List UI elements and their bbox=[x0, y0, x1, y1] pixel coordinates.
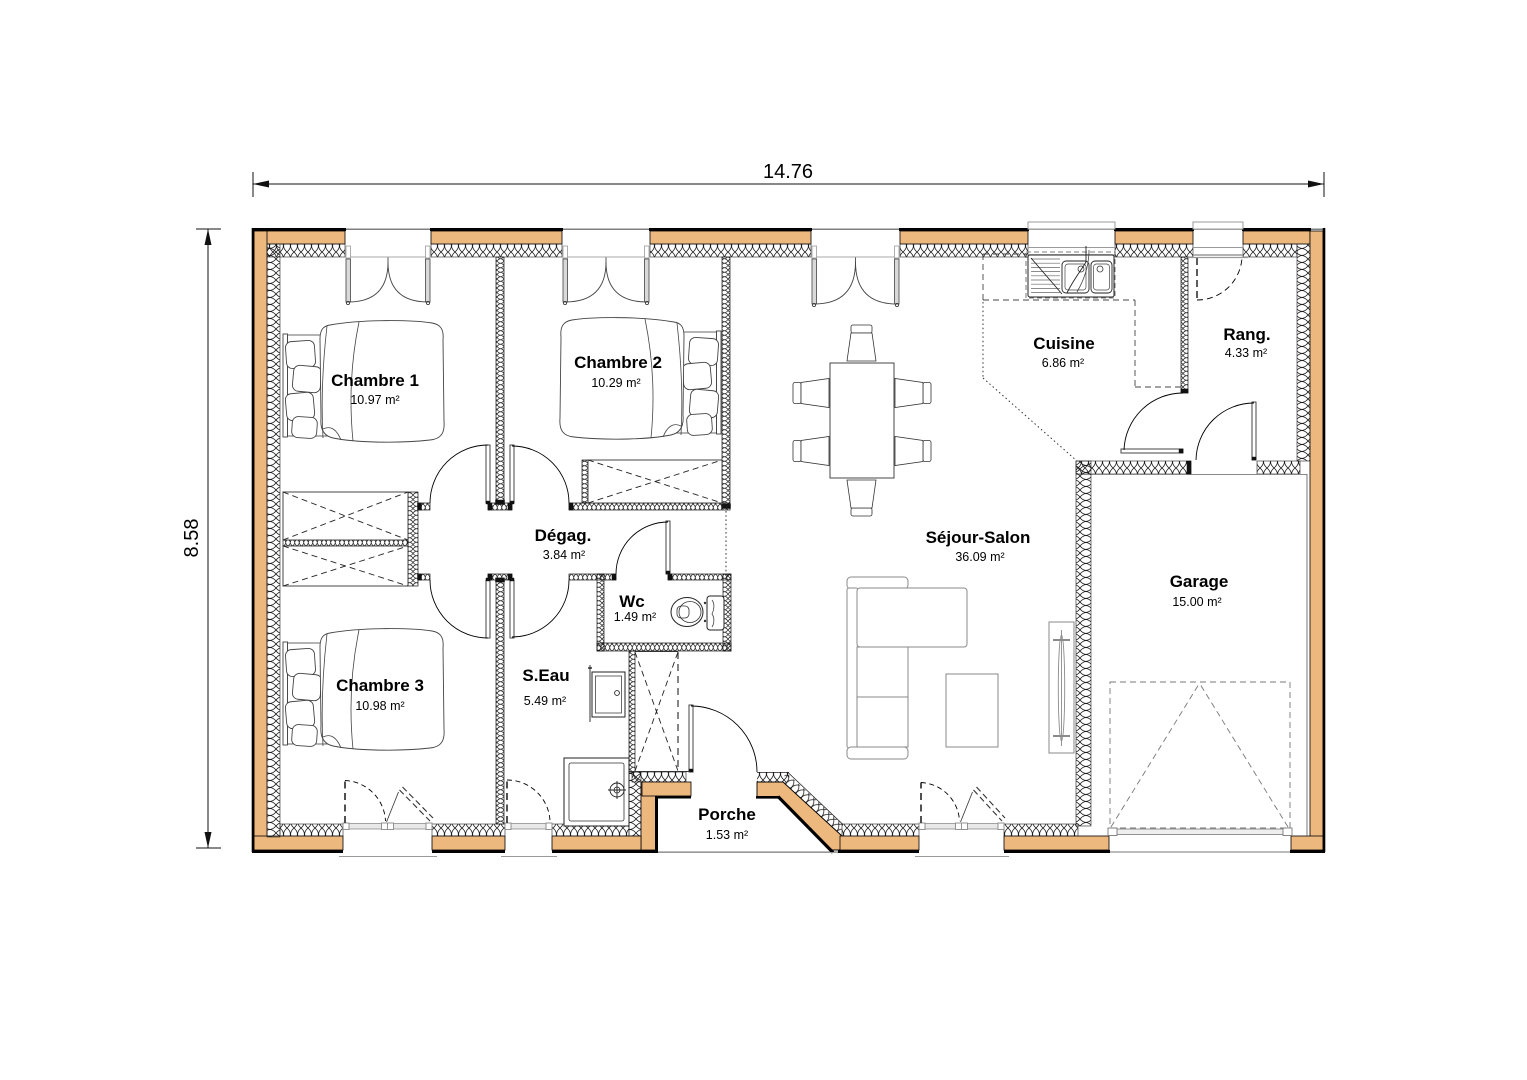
svg-text:5.49 m²: 5.49 m² bbox=[524, 694, 566, 708]
svg-text:6.86 m²: 6.86 m² bbox=[1042, 356, 1084, 370]
svg-text:Chambre 2: Chambre 2 bbox=[574, 353, 662, 372]
svg-text:Porche: Porche bbox=[698, 805, 756, 824]
svg-text:Cuisine: Cuisine bbox=[1033, 334, 1094, 353]
svg-text:Séjour-Salon: Séjour-Salon bbox=[926, 528, 1031, 547]
svg-text:15.00 m²: 15.00 m² bbox=[1172, 595, 1221, 609]
svg-text:14.76: 14.76 bbox=[763, 161, 813, 183]
svg-text:Chambre 3: Chambre 3 bbox=[336, 676, 424, 695]
svg-text:S.Eau: S.Eau bbox=[522, 666, 569, 685]
svg-text:1.53 m²: 1.53 m² bbox=[706, 828, 748, 842]
svg-text:36.09 m²: 36.09 m² bbox=[955, 550, 1004, 564]
svg-text:Rang.: Rang. bbox=[1223, 325, 1270, 344]
svg-text:4.33 m²: 4.33 m² bbox=[1225, 346, 1267, 360]
svg-text:10.98 m²: 10.98 m² bbox=[355, 699, 404, 713]
svg-text:10.29 m²: 10.29 m² bbox=[591, 376, 640, 390]
svg-text:Chambre 1: Chambre 1 bbox=[331, 371, 419, 390]
svg-text:10.97 m²: 10.97 m² bbox=[350, 393, 399, 407]
svg-text:Garage: Garage bbox=[1170, 572, 1229, 591]
svg-text:1.49 m²: 1.49 m² bbox=[614, 610, 656, 624]
svg-text:Dégag.: Dégag. bbox=[535, 526, 592, 545]
svg-text:3.84 m²: 3.84 m² bbox=[543, 548, 585, 562]
svg-text:Wc: Wc bbox=[619, 592, 645, 611]
svg-text:8.58: 8.58 bbox=[181, 519, 203, 558]
